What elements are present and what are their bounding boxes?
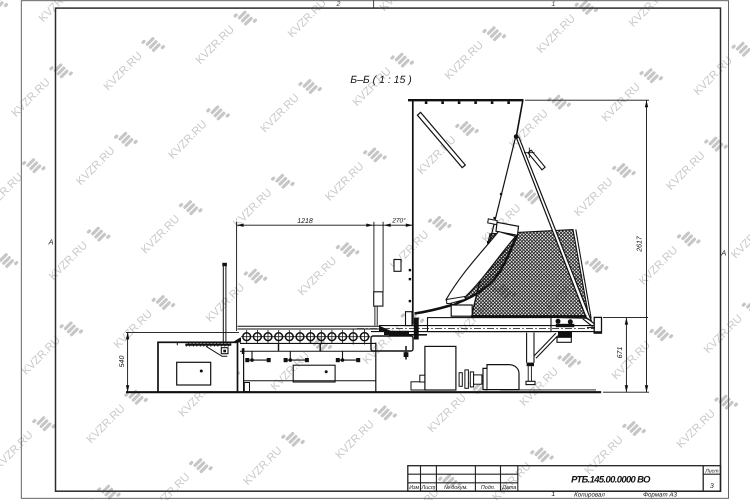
svg-text:A: A xyxy=(48,238,54,247)
svg-text:1: 1 xyxy=(552,491,556,498)
svg-text:1: 1 xyxy=(552,1,556,8)
svg-text:№ докум.: № докум. xyxy=(444,485,468,491)
svg-text:671: 671 xyxy=(617,347,624,359)
svg-text:Б–Б ( 1 : 15 ): Б–Б ( 1 : 15 ) xyxy=(350,74,412,86)
svg-text:270°: 270° xyxy=(391,218,406,225)
svg-text:Копировал: Копировал xyxy=(574,492,605,499)
svg-text:2617: 2617 xyxy=(636,235,643,253)
svg-text:Лист: Лист xyxy=(421,485,436,491)
svg-text:Дата: Дата xyxy=(501,485,516,491)
svg-text:2: 2 xyxy=(336,1,341,8)
svg-text:540: 540 xyxy=(119,356,126,368)
svg-text:РТБ.145.00.0000 ВО: РТБ.145.00.0000 ВО xyxy=(571,474,651,485)
svg-text:3: 3 xyxy=(710,483,714,490)
svg-text:Изм: Изм xyxy=(409,485,419,491)
svg-text:1218: 1218 xyxy=(297,218,313,225)
svg-text:Формат А3: Формат А3 xyxy=(643,492,677,499)
svg-text:A: A xyxy=(720,249,726,258)
svg-text:Подп.: Подп. xyxy=(481,485,495,491)
svg-text:Лист: Лист xyxy=(704,468,719,474)
